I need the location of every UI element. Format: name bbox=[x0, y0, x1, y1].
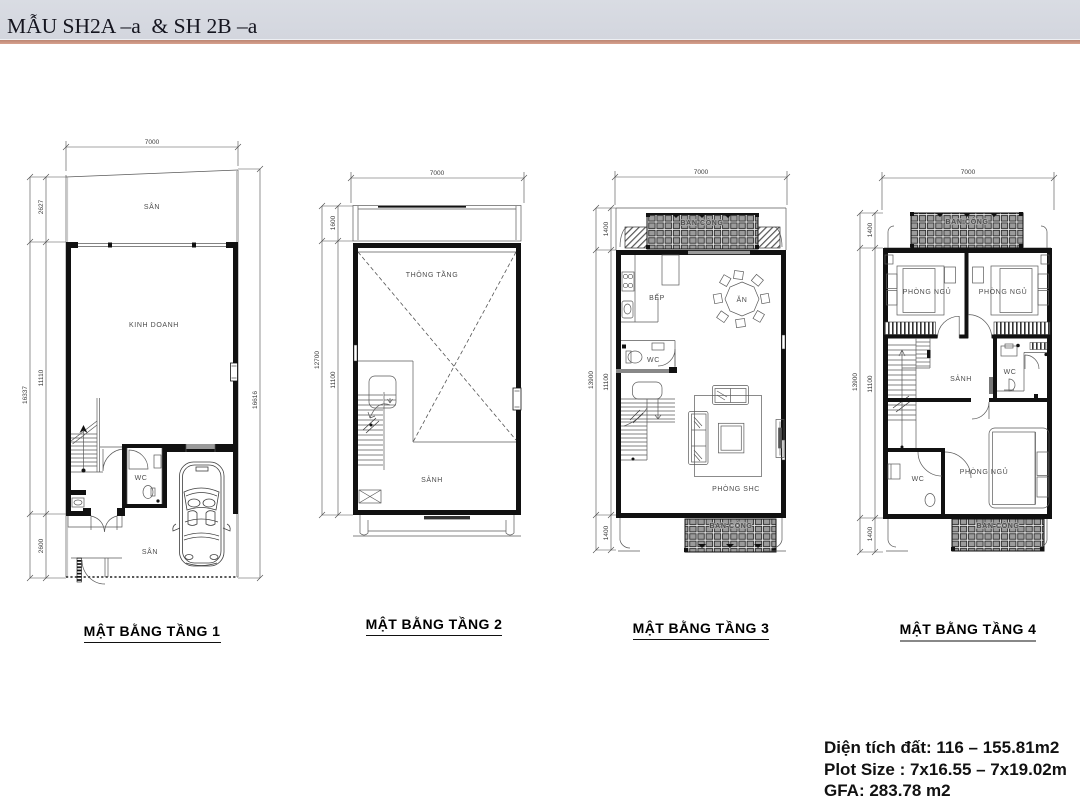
svg-text:BAN CÔNG: BAN CÔNG bbox=[946, 217, 989, 226]
svg-text:ĂN: ĂN bbox=[737, 295, 748, 304]
svg-text:PHÒNG NGỦ: PHÒNG NGỦ bbox=[903, 287, 952, 296]
svg-text:12700: 12700 bbox=[314, 351, 321, 369]
svg-text:MẬT BẰNG TẦNG 3: MẬT BẰNG TẦNG 3 bbox=[633, 619, 770, 636]
svg-text:PHÒNG NGỦ: PHÒNG NGỦ bbox=[960, 467, 1009, 476]
svg-text:WC: WC bbox=[1004, 369, 1017, 376]
svg-text:13900: 13900 bbox=[588, 371, 595, 389]
svg-text:BAN CÔNG: BAN CÔNG bbox=[681, 218, 724, 227]
svg-text:BẾP: BẾP bbox=[649, 292, 665, 302]
svg-text:PHÒNG SHC: PHÒNG SHC bbox=[712, 484, 760, 493]
svg-text:BAN CÔNG: BAN CÔNG bbox=[977, 521, 1020, 530]
svg-text:16337: 16337 bbox=[22, 386, 29, 404]
svg-text:THÔNG TẦNG: THÔNG TẦNG bbox=[406, 269, 459, 279]
svg-text:BAN CÔNG: BAN CÔNG bbox=[710, 521, 753, 530]
svg-text:WC: WC bbox=[912, 476, 925, 483]
svg-text:1400: 1400 bbox=[867, 222, 874, 237]
svg-text:7000: 7000 bbox=[145, 139, 160, 146]
svg-text:MẬT BẰNG TẦNG 1: MẬT BẰNG TẦNG 1 bbox=[84, 622, 221, 639]
svg-text:7000: 7000 bbox=[694, 169, 709, 176]
svg-text:SẢNH: SẢNH bbox=[950, 374, 972, 383]
svg-text:2600: 2600 bbox=[38, 538, 45, 553]
svg-text:13900: 13900 bbox=[852, 373, 859, 391]
svg-text:16616: 16616 bbox=[252, 391, 259, 409]
svg-text:MẬT BẰNG TẦNG 4: MẬT BẰNG TẦNG 4 bbox=[900, 620, 1037, 637]
svg-text:11100: 11100 bbox=[330, 371, 337, 388]
svg-text:WC: WC bbox=[647, 357, 660, 364]
svg-text:1400: 1400 bbox=[603, 221, 610, 236]
svg-text:1400: 1400 bbox=[603, 525, 610, 540]
svg-text:11100: 11100 bbox=[603, 373, 610, 390]
svg-text:SÂN: SÂN bbox=[144, 202, 160, 211]
svg-text:KINH DOANH: KINH DOANH bbox=[129, 322, 179, 329]
svg-text:1600: 1600 bbox=[330, 215, 337, 230]
svg-text:11100: 11100 bbox=[867, 375, 874, 392]
svg-text:11110: 11110 bbox=[38, 369, 45, 386]
svg-text:WC: WC bbox=[135, 475, 148, 482]
svg-text:MẬT BẰNG TẦNG 2: MẬT BẰNG TẦNG 2 bbox=[366, 615, 503, 632]
svg-text:2627: 2627 bbox=[38, 199, 45, 214]
svg-text:PHÒNG NGỦ: PHÒNG NGỦ bbox=[979, 287, 1028, 296]
svg-text:1400: 1400 bbox=[867, 526, 874, 541]
svg-text:7000: 7000 bbox=[961, 169, 976, 176]
svg-text:7000: 7000 bbox=[430, 170, 445, 177]
svg-text:SÂN: SÂN bbox=[142, 547, 158, 556]
svg-text:SẢNH: SẢNH bbox=[421, 475, 443, 484]
